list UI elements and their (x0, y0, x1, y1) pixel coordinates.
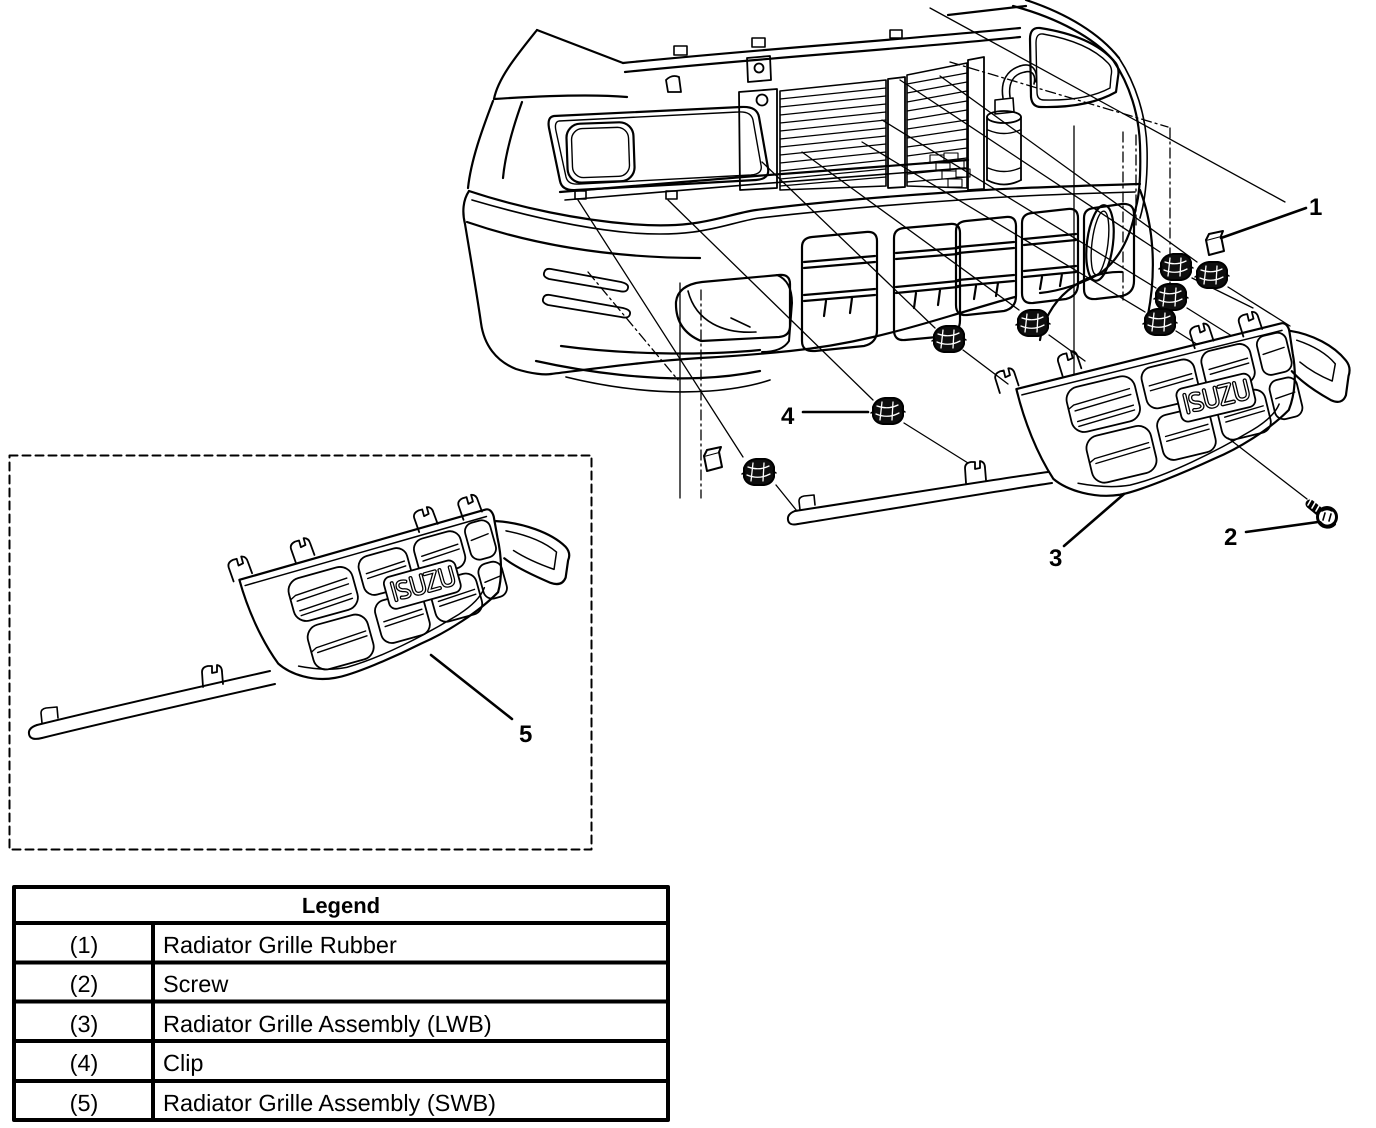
svg-text:4: 4 (781, 403, 795, 430)
svg-text:3: 3 (1049, 545, 1062, 572)
svg-text:2: 2 (1224, 524, 1237, 551)
svg-text:Radiator Grille Assembly (SWB): Radiator Grille Assembly (SWB) (163, 1090, 496, 1116)
svg-text:(3): (3) (70, 1011, 99, 1037)
svg-text:Legend: Legend (302, 893, 380, 918)
svg-text:Radiator Grille Rubber: Radiator Grille Rubber (163, 932, 397, 958)
svg-text:1: 1 (1309, 194, 1322, 221)
svg-text:Clip: Clip (163, 1050, 203, 1076)
svg-text:Radiator Grille Assembly (LWB): Radiator Grille Assembly (LWB) (163, 1011, 492, 1037)
svg-text:(1): (1) (70, 932, 99, 958)
svg-text:(4): (4) (70, 1050, 99, 1076)
svg-text:(2): (2) (70, 971, 99, 997)
svg-text:5: 5 (519, 721, 532, 748)
svg-text:Screw: Screw (163, 971, 229, 997)
svg-text:(5): (5) (70, 1090, 99, 1116)
